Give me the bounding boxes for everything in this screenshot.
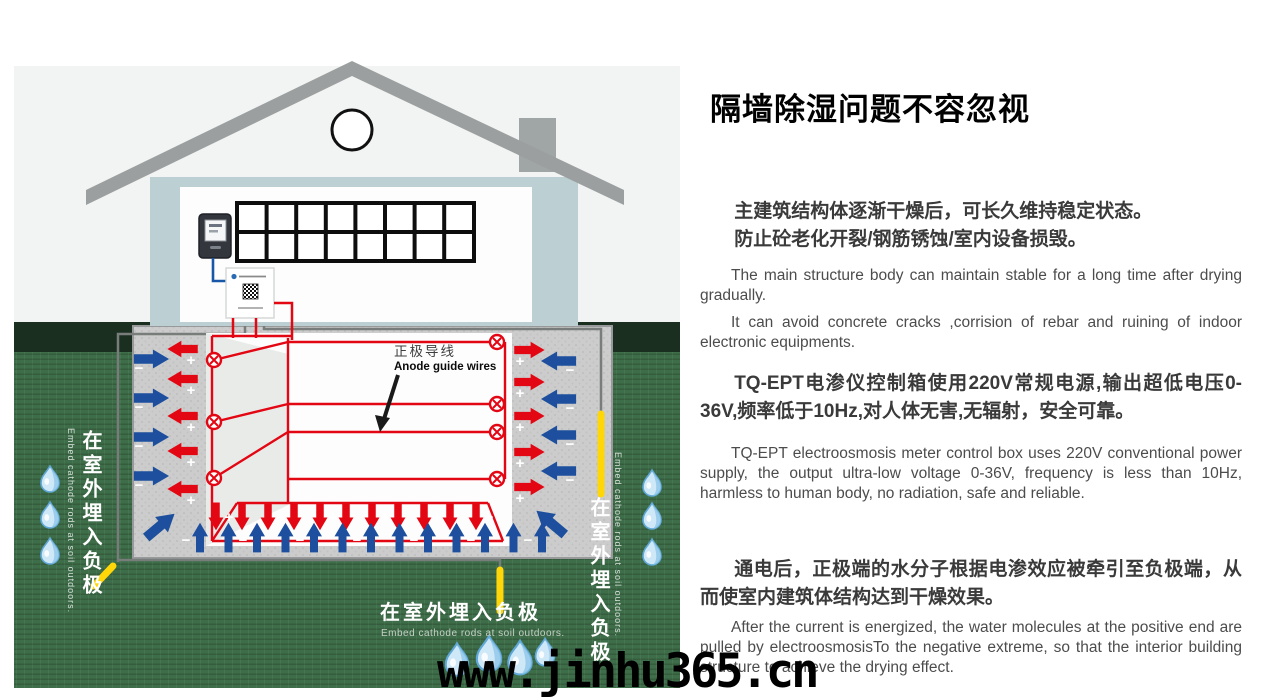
page-title: 隔墙除湿问题不容忽视 (710, 84, 1270, 129)
polarity-plus-sign: + (277, 509, 286, 526)
polarity-minus-sign: − (135, 477, 144, 494)
watermark: www.jinhu365.cn (437, 644, 816, 699)
polarity-minus-sign: − (182, 532, 191, 549)
cathode-label-bottom: 在室外埋入负极 Embed cathode rods at soil outdo… (380, 596, 565, 639)
control-box (226, 268, 274, 318)
control-box-logo-icon (231, 274, 236, 279)
section-3-zh: 通电后，正极端的水分子根据电渗效应被牵引至负极端，从而使室内建筑体结构达到干燥效… (700, 556, 1242, 612)
qr-code (243, 284, 258, 299)
section-2-en: TQ-EPT electroosmosis meter control box … (700, 444, 1242, 511)
polarity-minus-sign: − (566, 436, 575, 453)
polarity-plus-sign: + (433, 509, 442, 526)
polarity-plus-sign: + (187, 454, 196, 471)
polarity-minus-sign: − (135, 438, 144, 455)
cathode-label-right-en: Embed cathode rods at soil outdoors. (613, 452, 622, 637)
cathode-label-bottom-zh: 在室外埋入负极 (380, 596, 565, 625)
cathode-label-bottom-en: Embed cathode rods at soil outdoors. (381, 628, 565, 639)
polarity-minus-sign: − (135, 399, 144, 416)
section-1-zh-line-1: 主建筑结构体逐渐干燥后，可长久维持稳定状态。 (700, 198, 1242, 226)
polarity-plus-sign: + (516, 490, 525, 507)
section-3-zh-para: 通电后，正极端的水分子根据电渗效应被牵引至负极端，从而使室内建筑体结构达到干燥效… (700, 556, 1242, 612)
house-electroosmosis-diagram: −−−−++++++++++−−−−++++++−−−−−−− (0, 0, 700, 700)
section-2-zh: TQ-EPT电渗仪控制箱使用220V常规电源,输出超低电压0-36V,频率低于1… (700, 370, 1242, 426)
section-1-en: The main structure body can maintain sta… (700, 266, 1242, 360)
controller-device (199, 214, 231, 258)
section-1-zh-line-2: 防止砼老化开裂/钢筋锈蚀/室内设备损毁。 (700, 226, 1242, 254)
anode-wires-label: 正极导线 Anode guide wires (394, 340, 496, 373)
anode-label-en: Anode guide wires (394, 361, 496, 373)
polarity-plus-sign: + (187, 352, 196, 369)
polarity-minus-sign: − (239, 532, 248, 549)
polarity-plus-sign: + (187, 419, 196, 436)
polarity-plus-sign: + (516, 385, 525, 402)
polarity-plus-sign: + (225, 509, 234, 526)
polarity-minus-sign: − (353, 532, 362, 549)
polarity-minus-sign: − (566, 362, 575, 379)
polarity-plus-sign: + (187, 492, 196, 509)
gable-vent-circle (332, 110, 372, 150)
section-1-en-para-2: It can avoid concrete cracks ,corrision … (700, 313, 1242, 353)
polarity-minus-sign: − (296, 532, 305, 549)
section-2-en-para: TQ-EPT electroosmosis meter control box … (700, 444, 1242, 504)
polarity-plus-sign: + (516, 419, 525, 436)
polarity-plus-sign: + (329, 509, 338, 526)
polarity-minus-sign: − (566, 472, 575, 489)
polarity-plus-sign: + (516, 353, 525, 370)
polarity-minus-sign: − (410, 532, 419, 549)
cathode-label-left-zh: 在室外埋入负极 (80, 430, 100, 598)
polarity-minus-sign: − (566, 400, 575, 417)
page: −−−−++++++++++−−−−++++++−−−−−−− (0, 0, 1280, 700)
cathode-label-right-zh: 在室外埋入负极 (588, 497, 608, 665)
polarity-plus-sign: + (516, 455, 525, 472)
cathode-label-left-en: Embed cathode rods at soil outdoors. (66, 428, 75, 613)
window-grid (237, 203, 474, 261)
section-1-en-para-1: The main structure body can maintain sta… (700, 266, 1242, 306)
polarity-minus-sign: − (135, 360, 144, 377)
section-1-zh: 主建筑结构体逐渐干燥后，可长久维持稳定状态。 防止砼老化开裂/钢筋锈蚀/室内设备… (700, 198, 1242, 254)
polarity-plus-sign: + (187, 382, 196, 399)
polarity-minus-sign: − (524, 532, 533, 549)
anode-label-zh: 正极导线 (394, 340, 496, 360)
polarity-plus-sign: + (381, 509, 390, 526)
polarity-minus-sign: − (467, 532, 476, 549)
section-2-zh-para: TQ-EPT电渗仪控制箱使用220V常规电源,输出超低电压0-36V,频率低于1… (700, 370, 1242, 426)
polarity-plus-sign: + (485, 509, 494, 526)
